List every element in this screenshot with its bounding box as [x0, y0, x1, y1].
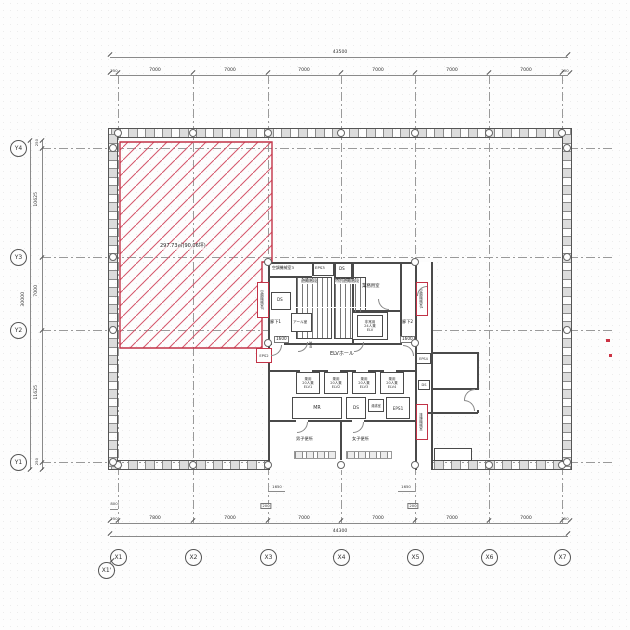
- axis-x5-label: X5: [412, 555, 420, 561]
- axis-x4-label: X4: [338, 555, 346, 561]
- rouka2-label: 廊下2: [402, 320, 413, 325]
- axis-x1-prime: X1': [98, 562, 115, 579]
- corridor-wall-east: [431, 262, 433, 470]
- ds-east-room: DS: [418, 380, 430, 390]
- axis-x1-label: X1: [115, 555, 123, 561]
- dim-sub-1650-b: 1650: [400, 485, 412, 489]
- axis-x4: X4: [333, 549, 350, 566]
- service-row-wall: [268, 420, 416, 422]
- axis-x6: X6: [481, 549, 498, 566]
- axis-x7: X7: [554, 549, 571, 566]
- east-door-gap: [476, 390, 480, 410]
- ac3-label: 空調機械室3: [272, 266, 294, 270]
- toilet-divider-wall: [340, 421, 342, 460]
- east-closet: [434, 448, 472, 461]
- aaru-label: アール室: [293, 320, 307, 324]
- area-label: 297.73㎡(90.06坪): [160, 244, 206, 250]
- dim-bottom-seg: 7000: [519, 517, 533, 522]
- axis-x3: X3: [260, 549, 277, 566]
- dim-bottom-seg: 7000: [223, 517, 237, 522]
- eps1-room: EPS1: [386, 397, 410, 419]
- dim-left-seg: 10625: [35, 192, 40, 207]
- yuwakashi-room: 湯沸室: [368, 399, 384, 412]
- dim-sub-200-b: 200: [407, 503, 418, 509]
- elv2-label: ELV2: [332, 385, 340, 389]
- dim-sub-1650-a: 1650: [271, 485, 283, 489]
- dim-bottom-total: 44300: [332, 530, 349, 535]
- dim-top-seg: 7000: [445, 69, 459, 74]
- axis-y1: Y1: [10, 454, 27, 471]
- mr-label: MR: [313, 406, 320, 411]
- dim-top-seg: 7000: [223, 69, 237, 74]
- yuwakashi-label: 湯沸室: [371, 403, 381, 408]
- elevator-1: 乗用 20人乗 ELV1: [296, 372, 320, 394]
- dim-bottom-seg: 7000: [371, 517, 385, 522]
- axis-y2: Y2: [10, 322, 27, 339]
- dim-left-total: 30000: [22, 292, 27, 307]
- hall-dim-300: 300: [308, 341, 312, 348]
- toilet-fixtures-men: [294, 451, 336, 459]
- dim-top-seg: 7000: [148, 69, 162, 74]
- axis-x1-prime-label: X1': [102, 568, 112, 574]
- dim-left-seg: 250: [35, 139, 39, 146]
- dim-bottom-seg: 7000: [445, 517, 459, 522]
- toilet-fixtures-women: [346, 451, 392, 459]
- axis-y4: Y4: [10, 140, 27, 157]
- eps3-label: EPS3: [315, 266, 325, 270]
- axis-x6-label: X6: [486, 555, 494, 561]
- elevator-2: 乗用 20人乗 ELV2: [324, 372, 348, 394]
- axis-x2: X2: [185, 549, 202, 566]
- stair2-label: 特別避難階段: [335, 279, 359, 284]
- dim-offset-800: 800: [109, 502, 118, 506]
- em-elv-line3: ELV: [367, 328, 373, 332]
- ac2-label: 空調機械室2: [261, 290, 266, 310]
- grid-line-x6: [489, 75, 490, 523]
- east-room-wall-1: [431, 352, 478, 354]
- axis-x7-label: X7: [559, 555, 567, 561]
- axis-x3-label: X3: [265, 555, 273, 561]
- axis-y3: Y3: [10, 249, 27, 266]
- ds-mid-room: DS: [346, 397, 366, 419]
- eps2-label: EPS2: [259, 354, 268, 358]
- stair1-label: 避難階段: [301, 279, 317, 284]
- dim-bottom-seg: 7000: [297, 517, 311, 522]
- dim-sub-200-a: 200: [260, 503, 271, 509]
- elv3-label: ELV3: [360, 385, 368, 389]
- dim-left-seg: 7000: [35, 285, 40, 297]
- dim-bottom-seg: 7800: [148, 517, 162, 522]
- dim-top-seg: 7000: [297, 69, 311, 74]
- hall-wall-north: [268, 343, 416, 345]
- eps1-label: EPS1: [393, 406, 404, 411]
- wc-men-label: 男子便所: [296, 437, 313, 442]
- ds-left-label: DS: [277, 298, 283, 303]
- elevator-4: 乗用 20人乗 ELV4: [380, 372, 404, 394]
- hall-dim-1600-left: 1600: [274, 336, 289, 343]
- eps2-room: EPS2: [256, 348, 272, 363]
- axis-y3-label: Y3: [15, 255, 22, 261]
- elevator-3: 乗用 20人乗 ELV3: [352, 372, 376, 394]
- emergency-elv-car: 非常用 24人乗 ELV: [357, 315, 383, 337]
- axis-x5: X5: [407, 549, 424, 566]
- haien-label: 排煙機械室: [420, 413, 425, 431]
- axis-x2-label: X2: [190, 555, 198, 561]
- red-mark-1: [606, 339, 610, 342]
- elv1-label: ELV1: [304, 385, 312, 389]
- elv4-label: ELV4: [388, 385, 396, 389]
- axis-y2-label: Y2: [15, 328, 22, 334]
- red-mark-2: [609, 354, 612, 357]
- ac2-room: 空調機械室2: [257, 282, 269, 318]
- wall-left: [108, 128, 118, 470]
- dim-top-seg: 7000: [371, 69, 385, 74]
- dim-left-seg: 11625: [35, 385, 40, 400]
- floor-plan: 297.73㎡(90.06坪) 避難階段 特別避難階段 空調機械室3 EPS3 …: [0, 0, 630, 630]
- mr-room: MR: [292, 397, 342, 419]
- axis-y1-label: Y1: [15, 460, 22, 466]
- wc-women-label: 女子便所: [352, 437, 369, 442]
- eps4-room: EPS4: [416, 353, 431, 364]
- dim-left-seg: 250: [35, 458, 39, 465]
- ds-mid-label: DS: [353, 406, 359, 411]
- elv-hall-label: ELVホール: [330, 352, 354, 358]
- axis-y4-label: Y4: [15, 146, 22, 152]
- dim-top-seg: 7000: [519, 69, 533, 74]
- partition-4: [400, 262, 402, 343]
- haien-room: 排煙機械室: [416, 404, 428, 440]
- eps4-label: EPS4: [419, 357, 428, 361]
- rouka1-label: 廊下1: [270, 320, 281, 325]
- dim-top-total: 43500: [332, 51, 349, 56]
- ds-top-label: DS: [339, 267, 345, 272]
- wall-right: [562, 128, 572, 470]
- ds-east-label: DS: [422, 383, 427, 387]
- gyomu-label: 業務用室: [362, 284, 380, 289]
